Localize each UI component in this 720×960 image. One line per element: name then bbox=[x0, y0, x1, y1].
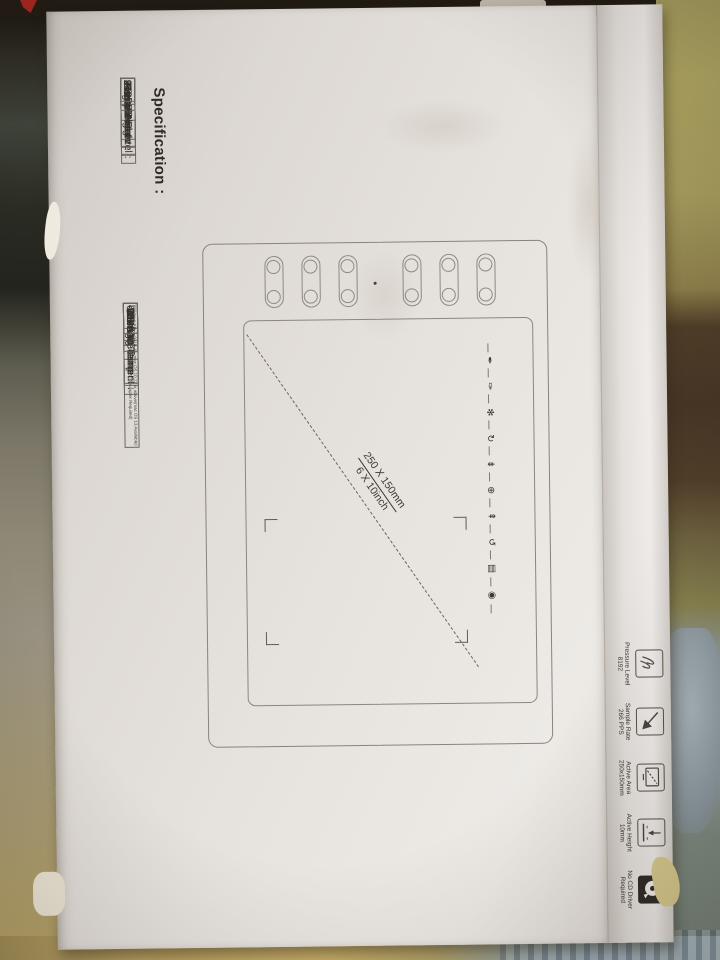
express-key bbox=[478, 257, 492, 271]
corner-mark-top-right bbox=[455, 630, 468, 643]
corner-mark-bottom-left bbox=[265, 519, 278, 532]
feature-caption: Pressure Level 8192 bbox=[616, 636, 631, 692]
speed-arrow-icon bbox=[636, 707, 664, 735]
strip-divider bbox=[489, 447, 490, 456]
feature-caption: No CD Driver Required bbox=[618, 862, 633, 918]
strip-divider bbox=[489, 395, 490, 404]
strip-divider bbox=[489, 473, 490, 482]
caption-line: Sample Rate bbox=[623, 694, 631, 750]
product-box: Specification : Active Area : 250x150mm … bbox=[46, 4, 673, 949]
scroll-down-icon: ⇟ bbox=[484, 460, 496, 468]
express-key bbox=[441, 258, 455, 272]
rotate-function-icon: ↻ bbox=[483, 434, 495, 442]
spec-value: 9.8g bbox=[120, 78, 135, 103]
feature-active-area: Active Area 250x150mm bbox=[608, 749, 673, 806]
express-key bbox=[442, 288, 456, 302]
express-key-pair bbox=[402, 254, 422, 306]
feature-caption: Active Area 250x150mm bbox=[617, 750, 632, 806]
express-key-pair bbox=[301, 255, 321, 307]
strip-divider bbox=[491, 578, 492, 587]
power-led-dot bbox=[374, 282, 377, 285]
spec-table-left: Active Area : 250x150mm Pressure Level :… bbox=[135, 78, 137, 264]
pen-function-icon: ✒ bbox=[483, 356, 495, 364]
caption-line: 250x150mm bbox=[617, 750, 625, 806]
caption-line: Active Height bbox=[625, 805, 633, 861]
box-edge-tear bbox=[33, 872, 66, 916]
target-function-icon: ◉ bbox=[485, 591, 497, 599]
caption-line: Active Area bbox=[624, 750, 632, 806]
express-key bbox=[267, 290, 281, 304]
spec-table-right: Interface : USB Working Current : <60mA … bbox=[138, 303, 141, 561]
strip-divider bbox=[490, 551, 491, 560]
caption-line: Pressure Level bbox=[623, 636, 631, 692]
tablet-area-icon bbox=[637, 763, 665, 791]
express-key bbox=[479, 287, 493, 301]
express-key bbox=[341, 289, 355, 303]
strip-divider bbox=[489, 421, 490, 430]
feature-pressure-level: Pressure Level 8192 bbox=[607, 635, 672, 692]
express-key bbox=[405, 288, 419, 302]
strip-divider bbox=[488, 343, 489, 352]
strip-divider bbox=[490, 525, 491, 534]
photo-of-tablet-box: Specification : Active Area : 250x150mm … bbox=[0, 0, 720, 960]
strip-divider bbox=[488, 369, 489, 378]
brush-function-icon: ✑ bbox=[483, 382, 495, 390]
strip-divider bbox=[491, 604, 492, 613]
box-side-face: Pressure Level 8192 Sample Rate 266 PPS bbox=[596, 4, 673, 943]
feature-active-height: Active Height 10mm bbox=[609, 804, 674, 861]
spec-value-os: Windows XP, 7, 8, 10, 11, mac OS 10.12 o… bbox=[123, 303, 140, 448]
feature-caption: Active Height 10mm bbox=[618, 805, 633, 861]
corner-mark-bottom-right bbox=[266, 632, 279, 645]
express-key-pair bbox=[264, 256, 284, 308]
express-key-pair bbox=[439, 254, 459, 306]
caption-line: No CD Driver bbox=[626, 862, 634, 918]
scroll-up-icon: ⇞ bbox=[484, 512, 496, 520]
express-key bbox=[404, 258, 418, 272]
express-key bbox=[304, 290, 318, 304]
undo-function-icon: ↺ bbox=[485, 538, 497, 546]
zoom-function-icon: ⊕ bbox=[484, 486, 496, 494]
express-key bbox=[303, 260, 317, 274]
box-main-face: Specification : Active Area : 250x150mm … bbox=[46, 5, 607, 950]
printed-panel: Specification : Active Area : 250x150mm … bbox=[46, 5, 607, 952]
express-key bbox=[266, 260, 280, 274]
feature-caption: Sample Rate 266 PPS bbox=[616, 694, 631, 750]
spray-function-icon: ✻ bbox=[483, 408, 495, 416]
os-support-line-1: Windows XP, 7, 8, 10, 11, mac OS 10.12 o… bbox=[132, 305, 139, 446]
strip-divider bbox=[490, 499, 491, 508]
panel-function-icon: ▤ bbox=[485, 564, 497, 573]
express-key-pair bbox=[476, 253, 496, 305]
express-key bbox=[340, 259, 354, 273]
pen-hover-icon bbox=[637, 818, 665, 846]
feature-sample-rate: Sample Rate 266 PPS bbox=[608, 693, 673, 750]
specification-heading: Specification : bbox=[150, 87, 168, 194]
tablet-diagram: ✒ ✑ ✻ ↻ ⇟ ⊕ ⇞ ↺ ▤ ◉ 250 X 150mm bbox=[202, 240, 553, 748]
side-feature-strip: Pressure Level 8192 Sample Rate 266 PPS bbox=[597, 4, 674, 943]
corner-mark-top-left bbox=[453, 517, 466, 530]
express-key-pair bbox=[338, 255, 358, 307]
pressure-strokes-icon bbox=[635, 649, 663, 677]
